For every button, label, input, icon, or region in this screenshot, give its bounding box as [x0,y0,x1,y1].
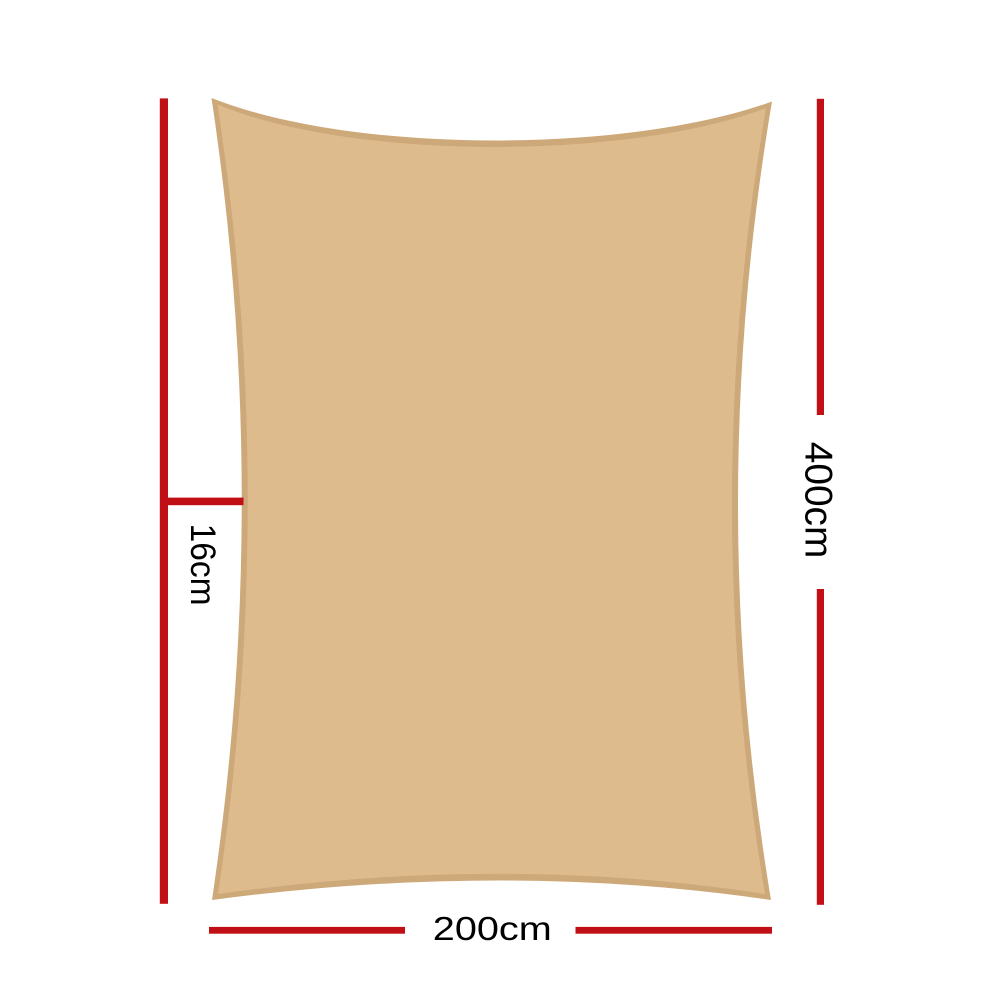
svg-text:400cm: 400cm [796,442,839,559]
svg-text:16cm: 16cm [183,524,223,606]
svg-text:200cm: 200cm [433,910,552,947]
